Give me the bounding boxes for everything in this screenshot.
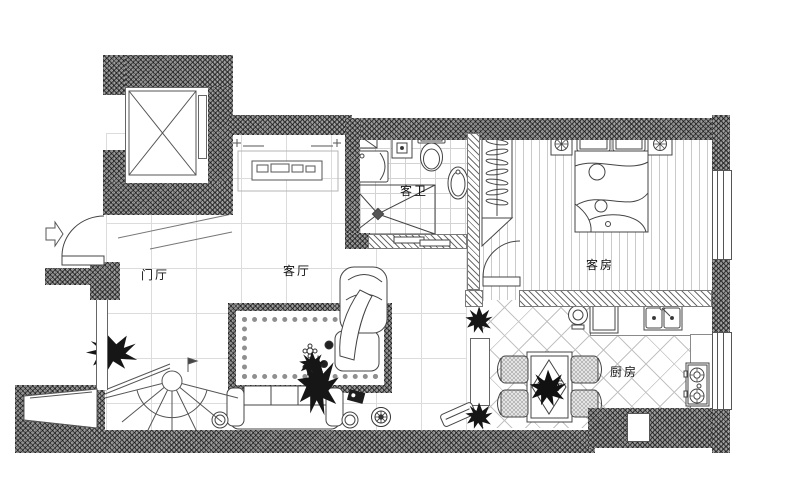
bathroom-sliding-door xyxy=(394,237,450,246)
room-label-bedroom: 客房 xyxy=(586,256,614,273)
room-label-kitchen: 厨房 xyxy=(610,363,638,380)
openings-layer xyxy=(0,0,800,501)
room-label-living: 客厅 xyxy=(283,262,311,279)
entry-door xyxy=(62,216,104,265)
room-label-bath: 客卫 xyxy=(400,182,428,199)
bay-window xyxy=(24,389,97,428)
room-label-entry: 门厅 xyxy=(141,266,169,283)
entry-arrow-icon xyxy=(46,222,63,246)
floor-plan: 门厅 客厅 客卫 客房 餐厅 厨房 xyxy=(0,0,800,501)
bedroom-door xyxy=(483,241,520,286)
dining-centerpiece-plant xyxy=(530,370,570,406)
